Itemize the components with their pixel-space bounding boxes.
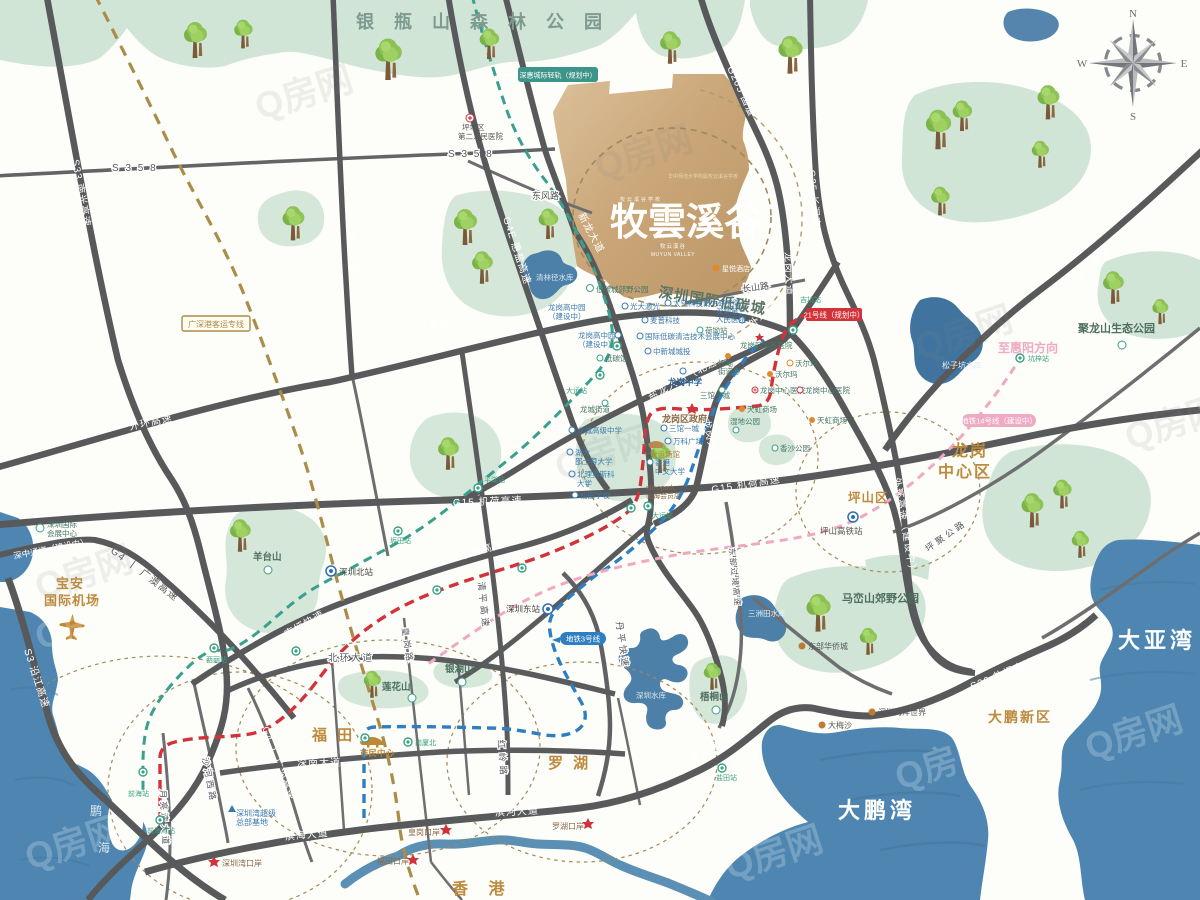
svg-text:龙岗区人民医院: 龙岗区人民医院	[740, 340, 793, 350]
svg-text:聚龙山生态公园: 聚龙山生态公园	[1077, 321, 1155, 335]
svg-text:光大激光: 光大激光	[630, 301, 660, 311]
svg-text:麦普科技: 麦普科技	[650, 315, 680, 325]
svg-text:深圳北站: 深圳北站	[339, 567, 374, 577]
svg-text:盐田站: 盐田站	[716, 773, 737, 782]
svg-text:至惠阳方向: 至惠阳方向	[998, 340, 1058, 355]
svg-text:天虹商场: 天虹商场	[817, 415, 847, 425]
svg-text:三馆一城: 三馆一城	[669, 423, 699, 433]
svg-text:深圳国际: 深圳国际	[47, 519, 77, 529]
svg-text:三洲田水库: 三洲田水库	[748, 608, 786, 618]
svg-text:坪地区: 坪地区	[462, 122, 485, 132]
svg-text:星悦酒店: 星悦酒店	[722, 264, 750, 273]
svg-text:岗厦北: 岗厦北	[415, 739, 436, 747]
svg-text:福 田: 福 田	[311, 726, 355, 744]
svg-text:21号线（规划中）: 21号线（规划中）	[804, 310, 865, 320]
svg-text:深圳湾口岸: 深圳湾口岸	[222, 858, 262, 868]
svg-text:大运站: 大运站	[566, 386, 587, 395]
svg-text:龙岗中学: 龙岗中学	[667, 377, 703, 387]
svg-text:街道办: 街道办	[718, 366, 741, 376]
svg-text:仙田学校: 仙田学校	[580, 490, 610, 500]
svg-text:大运站: 大运站	[652, 511, 673, 520]
svg-text:香 港: 香 港	[451, 879, 512, 898]
svg-text:总部基地: 总部基地	[236, 817, 268, 827]
svg-text:地铁14号线（建设中）: 地铁14号线（建设中）	[961, 416, 1037, 426]
svg-text:吉坑站: 吉坑站	[800, 295, 821, 304]
svg-text:坪山区: 坪山区	[848, 490, 889, 505]
svg-text:地铁3号线: 地铁3号线	[566, 634, 601, 644]
svg-text:罗湖口岸: 罗湖口岸	[552, 822, 584, 831]
svg-text:人民医院: 人民医院	[716, 314, 746, 324]
svg-text:湿地公园: 湿地公园	[730, 416, 760, 426]
svg-text:福田口岸: 福田口岸	[377, 857, 409, 866]
svg-text:银湖山: 银湖山	[445, 663, 474, 675]
svg-text:龙岗中心医院: 龙岗中心医院	[805, 385, 850, 395]
svg-text:牧云溪谷学校: 牧云溪谷学校	[620, 196, 662, 203]
svg-text:荷坳站: 荷坳站	[705, 325, 728, 335]
svg-text:清林径水库: 清林径水库	[536, 272, 574, 282]
svg-text:香沙公园: 香沙公园	[780, 443, 810, 453]
svg-text:广深港客运专线: 广深港客运专线	[188, 319, 244, 329]
svg-text:第二人民医院: 第二人民医院	[458, 131, 503, 141]
svg-text:中新城城投: 中新城城投	[653, 346, 691, 356]
svg-text:（建设中）: （建设中）	[578, 339, 616, 349]
svg-text:cocopark: cocopark	[646, 485, 675, 492]
svg-text:罗 湖: 罗 湖	[548, 755, 591, 772]
svg-text:前海湾站: 前海湾站	[147, 826, 175, 835]
svg-text:沃尔玛: 沃尔玛	[795, 358, 818, 368]
svg-text:平湖站: 平湖站	[484, 475, 505, 484]
svg-text:北环大道: 北环大道	[328, 652, 374, 664]
svg-text:深圳海洋世界: 深圳海洋世界	[878, 707, 926, 717]
svg-text:西丽站: 西丽站	[206, 655, 227, 664]
svg-text:低碳馆: 低碳馆	[605, 353, 628, 363]
svg-text:S: S	[1130, 111, 1136, 123]
svg-text:梧桐山: 梧桐山	[700, 691, 729, 703]
svg-text:N: N	[1129, 8, 1137, 20]
svg-text:龙岗高中园: 龙岗高中园	[578, 330, 616, 340]
svg-text:深圳东站: 深圳东站	[506, 604, 541, 614]
svg-text:龙岗: 龙岗	[951, 441, 988, 460]
svg-text:皇岗口岸: 皇岗口岸	[408, 827, 440, 837]
svg-text:牧雲溪谷: 牧雲溪谷	[610, 202, 762, 244]
svg-text:银瓶山森林公园: 银瓶山森林公园	[356, 11, 622, 32]
svg-text:坂田站: 坂田站	[390, 536, 411, 545]
svg-text:龙岗高中园: 龙岗高中园	[548, 302, 586, 312]
svg-text:中文大学: 中文大学	[655, 466, 685, 476]
svg-text:东风路: 东风路	[532, 190, 559, 201]
svg-text:坪山高铁站: 坪山高铁站	[820, 526, 863, 536]
svg-text:深圳湾超级: 深圳湾超级	[236, 808, 276, 818]
svg-text:大梅沙: 大梅沙	[828, 720, 852, 730]
svg-text:（建设中）: （建设中）	[548, 311, 586, 321]
svg-text:龙城街道: 龙城街道	[580, 404, 610, 414]
svg-text:S 3 5 8: S 3 5 8	[112, 163, 158, 174]
svg-text:东部华侨城: 东部华侨城	[808, 641, 848, 651]
svg-text:龙岗区政府: 龙岗区政府	[661, 413, 707, 424]
svg-text:莲花山: 莲花山	[382, 681, 411, 693]
svg-text:万科广场: 万科广场	[673, 436, 703, 446]
svg-text:大鹏湾: 大鹏湾	[838, 798, 916, 823]
svg-text:羊台山: 羊台山	[253, 551, 282, 563]
svg-text:牧云溪谷: 牧云溪谷	[660, 242, 686, 250]
svg-text:马峦山郊野公园: 马峦山郊野公园	[842, 591, 919, 605]
svg-text:深南大道: 深南大道	[297, 756, 341, 769]
svg-text:大亚湾: 大亚湾	[1118, 628, 1196, 653]
svg-text:会展中心: 会展中心	[47, 528, 77, 538]
svg-text:深惠城际轻轨（规划中）: 深惠城际轻轨（规划中）	[520, 71, 597, 80]
svg-text:低碳城郊野公园: 低碳城郊野公园	[596, 284, 649, 294]
svg-text:深圳水库: 深圳水库	[636, 690, 666, 700]
svg-text:前海站: 前海站	[128, 789, 149, 798]
svg-text:坑梓站: 坑梓站	[1028, 354, 1049, 363]
svg-text:三馆一城: 三馆一城	[700, 390, 730, 400]
svg-text:W: W	[1077, 58, 1088, 70]
svg-text:华中师范大学附属牧云溪谷学校: 华中师范大学附属牧云溪谷学校	[668, 173, 738, 180]
svg-text:中心区: 中心区	[938, 462, 992, 481]
svg-text:松子坑水库: 松子坑水库	[942, 360, 982, 370]
svg-text:沃尔玛: 沃尔玛	[775, 369, 798, 379]
svg-text:MUYUN VALLEY: MUYUN VALLEY	[651, 252, 695, 258]
svg-text:E: E	[1181, 58, 1188, 70]
svg-text:大鹏新区: 大鹏新区	[988, 709, 1052, 725]
svg-text:市民中心: 市民中心	[360, 748, 395, 758]
svg-text:山姆会员店: 山姆会员店	[646, 491, 681, 500]
svg-text:天虹商场: 天虹商场	[747, 404, 777, 414]
svg-text:S 3 5 8: S 3 5 8	[448, 149, 494, 160]
